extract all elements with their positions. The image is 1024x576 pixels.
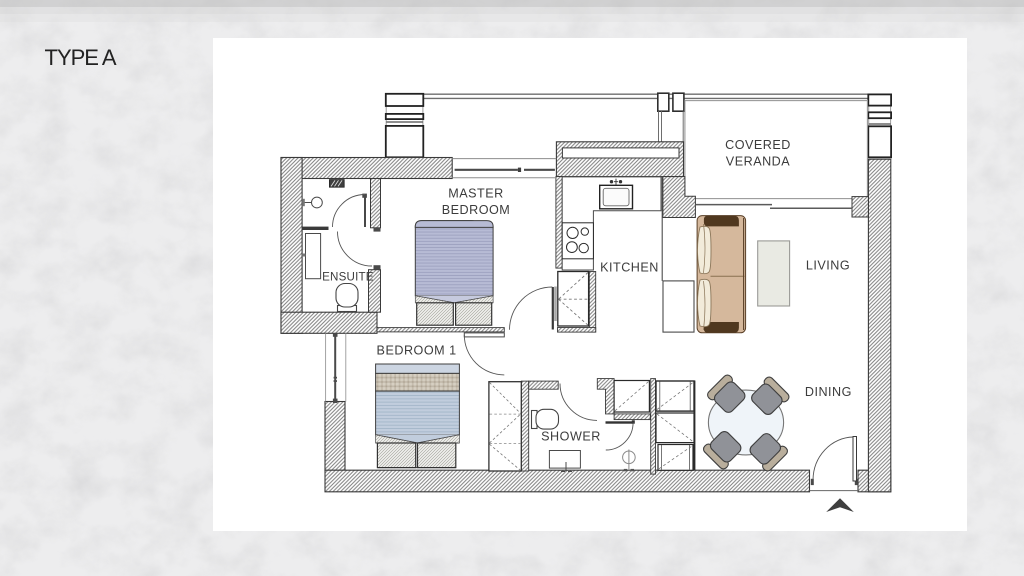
svg-text:TYPE A: TYPE A [45,45,117,70]
svg-text:LIVING: LIVING [806,259,850,273]
svg-text:MASTER: MASTER [448,186,503,200]
svg-text:COVERED: COVERED [725,138,791,152]
svg-text:VERANDA: VERANDA [726,154,790,168]
svg-text:SHOWER: SHOWER [541,430,601,444]
svg-text:BEDROOM 1: BEDROOM 1 [377,344,457,358]
svg-text:BEDROOM: BEDROOM [442,203,511,217]
svg-text:KITCHEN: KITCHEN [600,260,659,274]
svg-text:ENSUITE: ENSUITE [322,271,374,284]
svg-text:DINING: DINING [805,385,852,399]
